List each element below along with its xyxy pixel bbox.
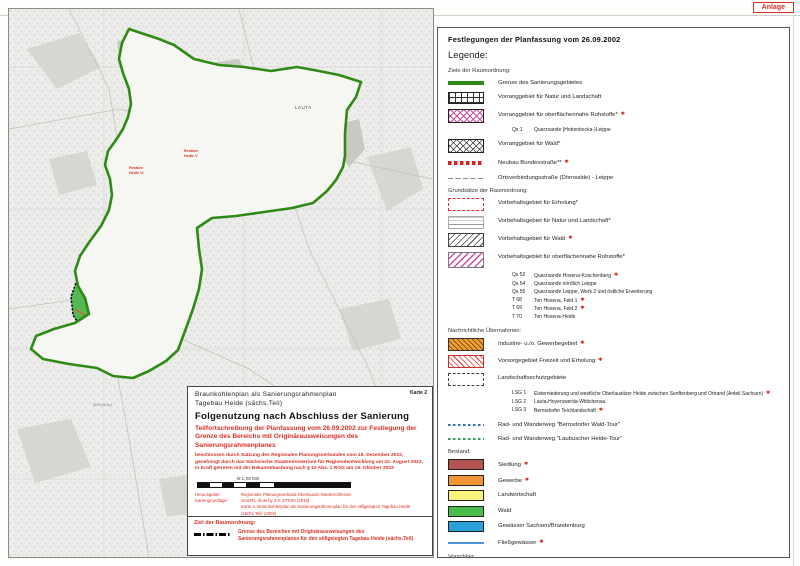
legend-sub-item: LSG 3Bernsdorfer Teichlandschaft✱ xyxy=(448,407,781,416)
svg-text:Restsee: Restsee xyxy=(184,149,198,153)
legend-sub-item: Qs 54Quarzsande nördlich Leippe xyxy=(448,281,781,289)
legend-item: Industrie- u./o. Gewerbegebiet✱ xyxy=(448,338,781,351)
plan-type-line2: Tagebau Heide (sächs.Teil) xyxy=(195,400,426,409)
legend-item: Vorranggebiet für oberflächennahe Rohsto… xyxy=(448,109,781,123)
amendment-paragraph: Teilfortschreibung der Planfassung vom 2… xyxy=(195,425,426,451)
legend-sub-text: Quarzsande Hosena-Koschenberg✱ xyxy=(534,272,618,281)
map-label-restsee-v: Restsee Heide V xyxy=(184,149,198,158)
legend-sections: Ziele der Raumordnung:Grenze des Sanieru… xyxy=(448,68,781,558)
ziel-block: Ziel der Raumordnung: Grenze des Bereich… xyxy=(187,516,433,556)
red-star-glyph: ✱ xyxy=(525,477,529,483)
legend-item-label: Industrie- u./o. Gewerbegebiet✱ xyxy=(498,338,584,349)
legend-sub-code: Qs 54 xyxy=(512,281,534,289)
legend-sub-item: LSG 1Elsterniederung und westliche Oberl… xyxy=(448,390,781,399)
originaer-boundary-symbol xyxy=(194,533,230,536)
legend-sub-list: Qs 52Quarzsande Hosena-Koschenberg✱Qs 54… xyxy=(448,272,781,322)
legend-item-label: Vorsorgegebiet Freizeit und Erholung✱ xyxy=(498,355,602,366)
legend-sub-text: Ton Hosena, Feld 2✱ xyxy=(534,305,585,314)
red-star-glyph: ✱ xyxy=(565,159,569,165)
legend-item-label: Vorranggebiet für Wald* xyxy=(498,139,560,149)
legend-item-label: Gewässer Sachsen/Brandenburg xyxy=(498,521,585,531)
legend-sub-item: Qs 55Quarzsande Leippe, Werk 2 und östli… xyxy=(448,289,781,297)
legend-item-label: Rad- und Wanderweg "Laubuscher Heide-Tou… xyxy=(498,434,622,444)
blue-line-symbol xyxy=(448,542,484,544)
legend-section-heading: Bestand: xyxy=(448,449,781,455)
landwirtschaft-symbol xyxy=(448,490,484,501)
legend-sub-code: T 68 xyxy=(512,297,534,306)
svg-text:Restsee: Restsee xyxy=(129,166,143,170)
red-star-glyph: ✱ xyxy=(580,305,584,311)
red-star-glyph: ✱ xyxy=(568,235,572,241)
magenta-lattice-box-symbol xyxy=(448,109,484,123)
gewaesser-symbol xyxy=(448,521,484,532)
legend-item-label: Ortsverbindungsstraße (Dörrwalde) - Leip… xyxy=(498,173,613,183)
legend-section: Nachrichtliche Übernahmen:Industrie- u./… xyxy=(448,328,781,444)
scale-label: M 1: 50 000 xyxy=(237,476,426,481)
svg-text:Heide V: Heide V xyxy=(184,154,198,158)
basemap-row: Kartengrundlage: GeoSN, dl-de by 2.0, DT… xyxy=(195,498,426,517)
map-label-restsee-vi: Restsee Heide VI xyxy=(129,166,144,175)
legend-sub-item: LSG 2Lauta-Hoyerswerda-Wittichenau xyxy=(448,399,781,407)
red-star-glyph: ✱ xyxy=(539,539,543,545)
basemap-value: GeoSN, dl-de by 2.0, DTK50 (2015) Karte … xyxy=(241,498,426,517)
ziel-heading: Ziel der Raumordnung: xyxy=(194,520,426,526)
legend-item-label: Grenze des Sanierungsgebietes xyxy=(498,78,582,88)
legend-item-label: Vorbehaltsgebiet für Erholung* xyxy=(498,198,578,208)
red-star-glyph: ✱ xyxy=(766,390,770,396)
plan-type-line1: Braunkohlenplan als Sanierungsrahmenplan xyxy=(195,391,426,400)
red-star-glyph: ✱ xyxy=(524,461,528,467)
legend-section: Ziele der Raumordnung:Grenze des Sanieru… xyxy=(448,68,781,182)
legend-item-label: Vorranggebiet für Natur und Landschaft xyxy=(498,92,601,102)
gewerbe-symbol xyxy=(448,475,484,486)
legend-item: Vorbehaltsgebiet für oberflächennahe Roh… xyxy=(448,252,781,268)
red-hatch-box-symbol xyxy=(448,355,484,368)
legend-sub-code: T 70 xyxy=(512,314,534,322)
legend-panel: Festlegungen der Planfassung vom 26.09.2… xyxy=(437,27,790,558)
green-line-symbol xyxy=(448,81,484,85)
legend-sub-text: Ton Hosena-Heide xyxy=(534,314,575,322)
decision-paragraph: beschlossen durch Satzung des Regionalen… xyxy=(195,453,426,471)
legend-sub-item: Qs 52Quarzsande Hosena-Koschenberg✱ xyxy=(448,272,781,281)
legend-item: Vorsorgegebiet Freizeit und Erholung✱ xyxy=(448,355,781,368)
anlage-tag: Anlage xyxy=(753,2,794,13)
legend-sub-item: Qs 1Quarzsande (Hohenbocka-)Leippe xyxy=(448,127,781,135)
legend-item: Fließgewässer✱ xyxy=(448,537,781,548)
legend-section-heading: Nachrichtliche Übernahmen: xyxy=(448,328,781,334)
legend-sub-text: Ton Hosena, Feld 1✱ xyxy=(534,297,585,306)
siedlung-symbol xyxy=(448,459,484,470)
basemap-line2: Karte 2, Braunkohlenplan als Sanierungsr… xyxy=(241,504,410,515)
map-label-wiednitz: Wiednitz xyxy=(93,402,112,407)
legend-item: Rad- und Wanderweg "Bernsdorfer Wald-Tou… xyxy=(448,420,781,430)
legend-section-heading: Vorschlag: xyxy=(448,554,781,558)
legend-sub-code: LSG 1 xyxy=(512,390,534,399)
legend-item: Gewässer Sachsen/Brandenburg xyxy=(448,521,781,532)
red-dash-line-symbol xyxy=(448,161,484,165)
grid-box-symbol xyxy=(448,92,484,104)
legend-item-label: Vorbehaltsgebiet für oberflächennahe Roh… xyxy=(498,252,625,262)
legend-sub-list: LSG 1Elsterniederung und westliche Oberl… xyxy=(448,390,781,415)
black-lattice-box-symbol xyxy=(448,139,484,153)
red-star-glyph: ✱ xyxy=(621,111,625,117)
red-star-glyph: ✱ xyxy=(580,340,584,346)
legend-item-label: Siedlung✱ xyxy=(498,459,528,470)
legend-item: Gewerbe✱ xyxy=(448,475,781,486)
legend-section-heading: Grundsätze der Raumordnung: xyxy=(448,188,781,194)
legend-item: Landwirtschaft xyxy=(448,490,781,501)
legend-item: Ortsverbindungsstraße (Dörrwalde) - Leip… xyxy=(448,173,781,183)
legend-sub-code: Qs 1 xyxy=(512,127,534,135)
legend-sub-text: Lauta-Hoyerswerda-Wittichenau xyxy=(534,399,605,407)
legend-header: Festlegungen der Planfassung vom 26.09.2… xyxy=(448,35,781,44)
wald-symbol xyxy=(448,506,484,517)
red-star-glyph: ✱ xyxy=(598,357,602,363)
ziel-text: Grenze des Bereiches mit Originärausweis… xyxy=(238,529,426,543)
legend-sub-item: T 68Ton Hosena, Feld 1✱ xyxy=(448,297,781,306)
red-star-glyph: ✱ xyxy=(580,297,584,303)
legend-sub-code: LSG 3 xyxy=(512,407,534,416)
legend-section: Grundsätze der Raumordnung:Vorbehaltsgeb… xyxy=(448,188,781,322)
legend-sub-item: T 69Ton Hosena, Feld 2✱ xyxy=(448,305,781,314)
legend-item-label: Landwirtschaft xyxy=(498,490,536,500)
gray-hlines-box-symbol xyxy=(448,216,484,229)
legend-item-label: Vorbehaltsgebiet für Natur und Landschaf… xyxy=(498,216,611,226)
magenta-diag-box-symbol xyxy=(448,252,484,268)
legend-item: Vorranggebiet für Wald* xyxy=(448,139,781,153)
legend-section-heading: Ziele der Raumordnung: xyxy=(448,68,781,74)
legend-item-label: Neubau Bundesstraße**✱ xyxy=(498,157,569,168)
legend-item-label: Wald xyxy=(498,506,511,516)
legend-item: Wald xyxy=(448,506,781,517)
legend-sub-text: Bernsdorfer Teichlandschaft✱ xyxy=(534,407,603,416)
blue-dot-line-symbol xyxy=(448,424,484,427)
basemap-key: Kartengrundlage: xyxy=(195,498,241,517)
red-star-glyph: ✱ xyxy=(599,407,603,413)
karte-label: Karte 2 xyxy=(410,390,427,396)
green-dot-line-symbol xyxy=(448,438,484,441)
legend-item: Neubau Bundesstraße**✱ xyxy=(448,157,781,168)
black-diag-box-symbol xyxy=(448,233,484,247)
map-label-lauta: LAUTA xyxy=(295,105,312,110)
legend-sub-code: Qs 52 xyxy=(512,272,534,281)
orange-hatch-box-symbol xyxy=(448,338,484,351)
legend-item: Landschaftsschutzgebiete xyxy=(448,373,781,386)
legend-sub-item: T 70Ton Hosena-Heide xyxy=(448,314,781,322)
gray-dash-line-symbol xyxy=(448,178,484,179)
scan-edge-line-right xyxy=(793,15,794,566)
title-block: Karte 2 Braunkohlenplan als Sanierungsra… xyxy=(187,386,433,517)
red-dashed-box-symbol xyxy=(448,198,484,211)
legend-item: Vorranggebiet für Natur und Landschaft xyxy=(448,92,781,104)
legend-sub-text: Quarzsande (Hohenbocka-)Leippe xyxy=(534,127,611,135)
dashed-border-box-symbol xyxy=(448,373,484,386)
legend-section: Vorschlag:Vorschlag zur Erstaufforstung✱… xyxy=(448,554,781,558)
svg-text:Heide VI: Heide VI xyxy=(129,171,144,175)
legend-sub-text: Elsterniederung und westliche Oberlausit… xyxy=(534,390,770,399)
legend-sub-code: T 69 xyxy=(512,305,534,314)
legend-section: Bestand:Siedlung✱Gewerbe✱LandwirtschaftW… xyxy=(448,449,781,547)
scale-bar xyxy=(197,482,351,488)
legend-item-label: Gewerbe✱ xyxy=(498,475,529,486)
legend-item: Vorbehaltsgebiet für Erholung* xyxy=(448,198,781,211)
map-main-title: Folgenutzung nach Abschluss der Sanierun… xyxy=(195,411,426,422)
red-star-glyph: ✱ xyxy=(614,272,618,278)
legend-item: Vorbehaltsgebiet für Wald✱ xyxy=(448,233,781,247)
legend-sub-code: LSG 2 xyxy=(512,399,534,407)
legend-sub-text: Quarzsande Leippe, Werk 2 und östliche E… xyxy=(534,289,652,297)
legend-item-label: Vorbehaltsgebiet für Wald✱ xyxy=(498,233,572,244)
legend-item-label: Landschaftsschutzgebiete xyxy=(498,373,566,383)
legend-item: Siedlung✱ xyxy=(448,459,781,470)
legend-title: Legende: xyxy=(448,50,781,61)
legend-item: Vorbehaltsgebiet für Natur und Landschaf… xyxy=(448,216,781,229)
legend-item-label: Rad- und Wanderweg "Bernsdorfer Wald-Tou… xyxy=(498,420,620,430)
legend-sub-text: Quarzsande nördlich Leippe xyxy=(534,281,597,289)
legend-item: Rad- und Wanderweg "Laubuscher Heide-Tou… xyxy=(448,434,781,444)
legend-item: Grenze des Sanierungsgebietes xyxy=(448,78,781,88)
legend-sub-code: Qs 55 xyxy=(512,289,534,297)
legend-sub-list: Qs 1Quarzsande (Hohenbocka-)Leippe xyxy=(448,127,781,135)
legend-item-label: Vorranggebiet für oberflächennahe Rohsto… xyxy=(498,109,625,120)
legend-item-label: Fließgewässer✱ xyxy=(498,537,544,548)
basemap-line1: GeoSN, dl-de by 2.0, DTK50 (2015) xyxy=(241,498,309,503)
